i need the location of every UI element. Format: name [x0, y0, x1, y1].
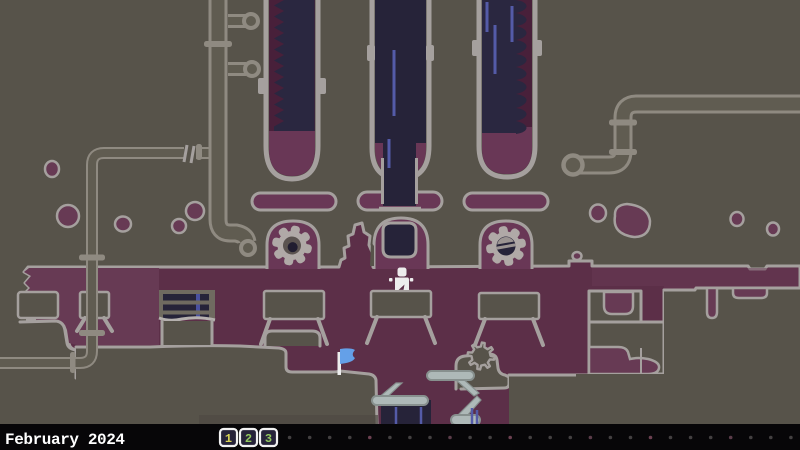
svg-text:1: 1: [225, 432, 232, 446]
svg-text:3: 3: [265, 432, 272, 446]
svg-text:February 2024: February 2024: [5, 431, 125, 449]
svg-text:2: 2: [245, 432, 252, 446]
